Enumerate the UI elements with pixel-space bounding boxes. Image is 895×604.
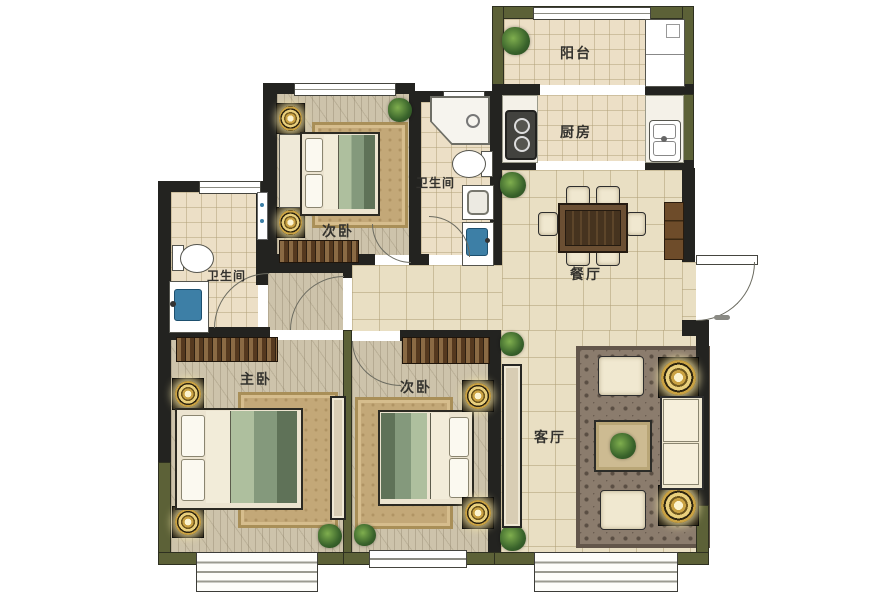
table-plant [610, 433, 636, 459]
room-label-bedroom-upper: 次卧 [322, 225, 354, 239]
entry-threshold-floor [682, 262, 696, 322]
balcony-window [533, 7, 651, 20]
pillow [305, 138, 323, 172]
room-label-living: 客厅 [534, 431, 566, 445]
pillow [449, 417, 469, 457]
room-label-dining: 餐厅 [570, 268, 602, 282]
stove-icon [505, 110, 537, 160]
bedroom-upper-window [294, 83, 396, 96]
side-table [658, 485, 699, 526]
wall [674, 552, 709, 565]
pocket-door [257, 192, 268, 240]
toilet-icon [452, 149, 492, 178]
bed [378, 410, 474, 506]
armchair [598, 356, 644, 396]
bathroom-lower-window [199, 181, 261, 194]
table-lamp-icon [465, 500, 491, 526]
table-lamp-icon [175, 381, 201, 407]
bed [175, 408, 303, 510]
wardrobe [402, 337, 490, 364]
wardrobe [176, 337, 278, 362]
shower-head-icon [466, 114, 480, 128]
wall [158, 462, 171, 565]
wardrobe [279, 240, 359, 263]
living-bay-window [534, 552, 678, 592]
table-lamp-icon [279, 210, 302, 235]
cabinet-divider [646, 54, 684, 55]
door-knob [260, 219, 264, 223]
bedroom-lower-window [369, 550, 467, 568]
pillow [449, 458, 469, 498]
hallway-floor [352, 265, 502, 331]
plant [502, 27, 530, 55]
table-lamp-icon [175, 509, 201, 535]
wall [421, 254, 429, 265]
door-knob [260, 203, 264, 207]
wall [492, 6, 504, 94]
nightstand [462, 497, 494, 529]
dining-table [558, 203, 628, 253]
entry-door-handle [714, 315, 730, 320]
entry-door-arc [696, 262, 755, 321]
nightstand [172, 506, 204, 538]
bed-blanket [231, 411, 297, 503]
wall [268, 262, 345, 273]
sink-basin-blue [174, 289, 202, 321]
plant [388, 98, 412, 122]
bedroom-upper-door-arc [372, 224, 411, 263]
sofa [660, 396, 704, 490]
dining-chair [626, 212, 646, 236]
room-label-bathroom-lower: 卫生间 [207, 270, 246, 282]
dining-table-top [565, 210, 621, 246]
washing-machine-icon [462, 185, 494, 220]
plant [318, 524, 342, 548]
toilet-bowl [452, 150, 486, 178]
entry-cabinet [664, 202, 684, 260]
bed-sheet [206, 411, 231, 503]
coffee-table [594, 420, 652, 472]
table-lamp-icon [661, 360, 696, 395]
armchair [600, 490, 646, 530]
table-lamp-icon [279, 106, 302, 131]
table-lamp-icon [661, 488, 696, 523]
bed-sheet [430, 413, 449, 499]
tv-cabinet [330, 396, 346, 520]
nightstand [462, 380, 494, 412]
room-label-balcony: 阳台 [560, 47, 592, 61]
bed-sheet [324, 135, 339, 209]
vanity-sink [169, 281, 209, 333]
pillow [181, 415, 205, 457]
room-label-bedroom-lower: 次卧 [400, 381, 432, 395]
nightstand [172, 378, 204, 410]
table-lamp-icon [465, 383, 491, 409]
plant [500, 525, 526, 551]
bed-blanket [339, 135, 375, 209]
pillow [305, 174, 323, 208]
bed [300, 132, 380, 216]
wall [314, 552, 345, 565]
master-bay-window [196, 552, 318, 592]
wall [494, 552, 536, 565]
kitchen-sink-icon [649, 120, 681, 162]
bed-blanket [381, 413, 427, 499]
plant [500, 172, 526, 198]
sofa-cushion [663, 443, 699, 485]
pillow [181, 459, 205, 501]
dining-chair [538, 212, 558, 236]
room-label-kitchen: 厨房 [560, 126, 592, 140]
balcony-cabinet [645, 19, 685, 87]
sink-basin [653, 141, 676, 156]
plant [354, 524, 376, 546]
wall [158, 552, 198, 565]
cabinet-basin [666, 24, 680, 38]
floor-plan: 阳台 厨房 卫生间 卫生间 次卧 餐厅 主卧 次卧 客厅 [0, 0, 895, 604]
wall [343, 262, 352, 278]
faucet-icon [661, 136, 667, 142]
plant [500, 332, 524, 356]
nightstand [276, 103, 305, 134]
room-label-master: 主卧 [240, 373, 272, 387]
sofa-cushion [663, 399, 699, 442]
faucet-icon [485, 238, 490, 243]
tv-cabinet [502, 364, 522, 528]
room-label-bathroom-upper: 卫生间 [416, 177, 455, 189]
side-table [658, 357, 699, 398]
faucet-icon [170, 301, 176, 307]
